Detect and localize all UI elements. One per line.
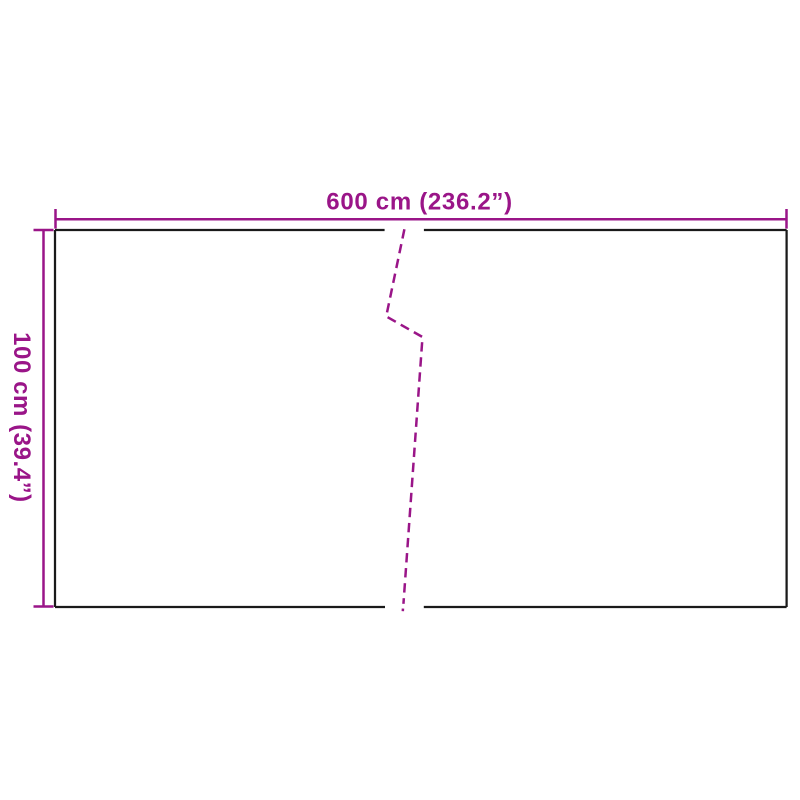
svg-text:100 cm (39.4”): 100 cm (39.4”) (8, 332, 35, 502)
svg-text:600 cm (236.2”): 600 cm (236.2”) (326, 189, 512, 216)
